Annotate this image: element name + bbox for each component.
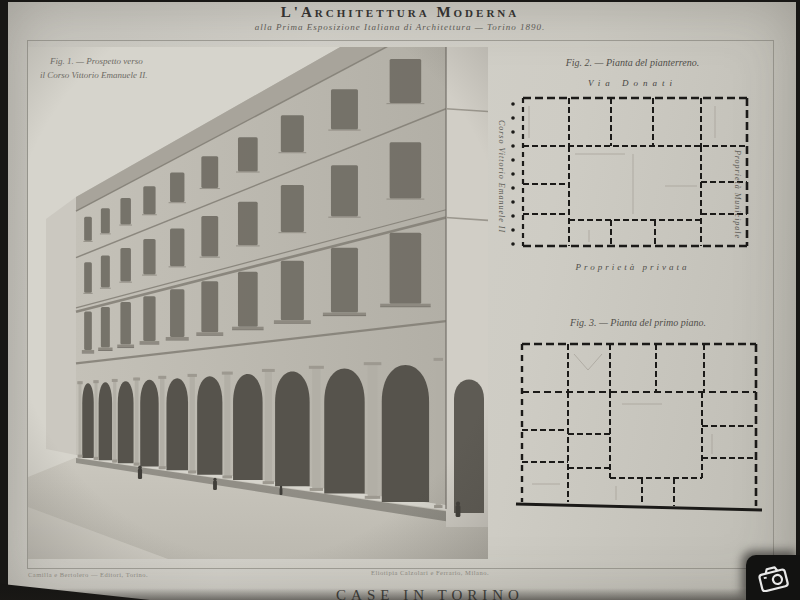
figure1-caption-line1: Fig. 1. — Prospetto verso xyxy=(50,55,148,69)
facade-group xyxy=(28,47,488,559)
first-floor-plan xyxy=(512,334,764,524)
figure1-photograph: Fig. 1. — Prospetto verso il Corso Vitto… xyxy=(28,47,488,559)
page-subtitle: alla Prima Esposizione Italiana di Archi… xyxy=(0,22,800,32)
scanned-plate: L'Architettura Moderna alla Prima Esposi… xyxy=(0,0,800,600)
label-proprieta-privata: Proprietà privata xyxy=(510,262,755,272)
page-title: L'Architettura Moderna xyxy=(0,4,800,21)
figure1-caption-line2: il Corso Vittorio Emanuele II. xyxy=(40,69,148,83)
imprint-printer: Eliotipia Calzolari e Ferrario, Milano. xyxy=(300,569,560,576)
ground-floor-plan xyxy=(505,90,760,260)
street-label-via-donati: Via Donati xyxy=(505,78,760,88)
camera-watermark xyxy=(746,555,800,600)
masthead: L'Architettura Moderna alla Prima Esposi… xyxy=(0,4,800,32)
camera-icon xyxy=(756,564,790,592)
street-label-corso: Corso Vittorio Emanuele II xyxy=(497,112,506,242)
building-facade-illustration xyxy=(28,47,488,559)
figure3-caption: Fig. 3. — Pianta del primo piano. xyxy=(512,317,764,328)
scan-bottom-shadow xyxy=(0,588,800,600)
figure2-caption: Fig. 2. — Pianta del pianterreno. xyxy=(505,57,760,68)
figure1-caption: Fig. 1. — Prospetto verso il Corso Vitto… xyxy=(40,55,148,83)
imprint-publisher: Camilla e Bertolero — Editori, Torino. xyxy=(28,571,148,578)
label-proprieta-municipale: Proprietà Municipale xyxy=(733,130,742,260)
